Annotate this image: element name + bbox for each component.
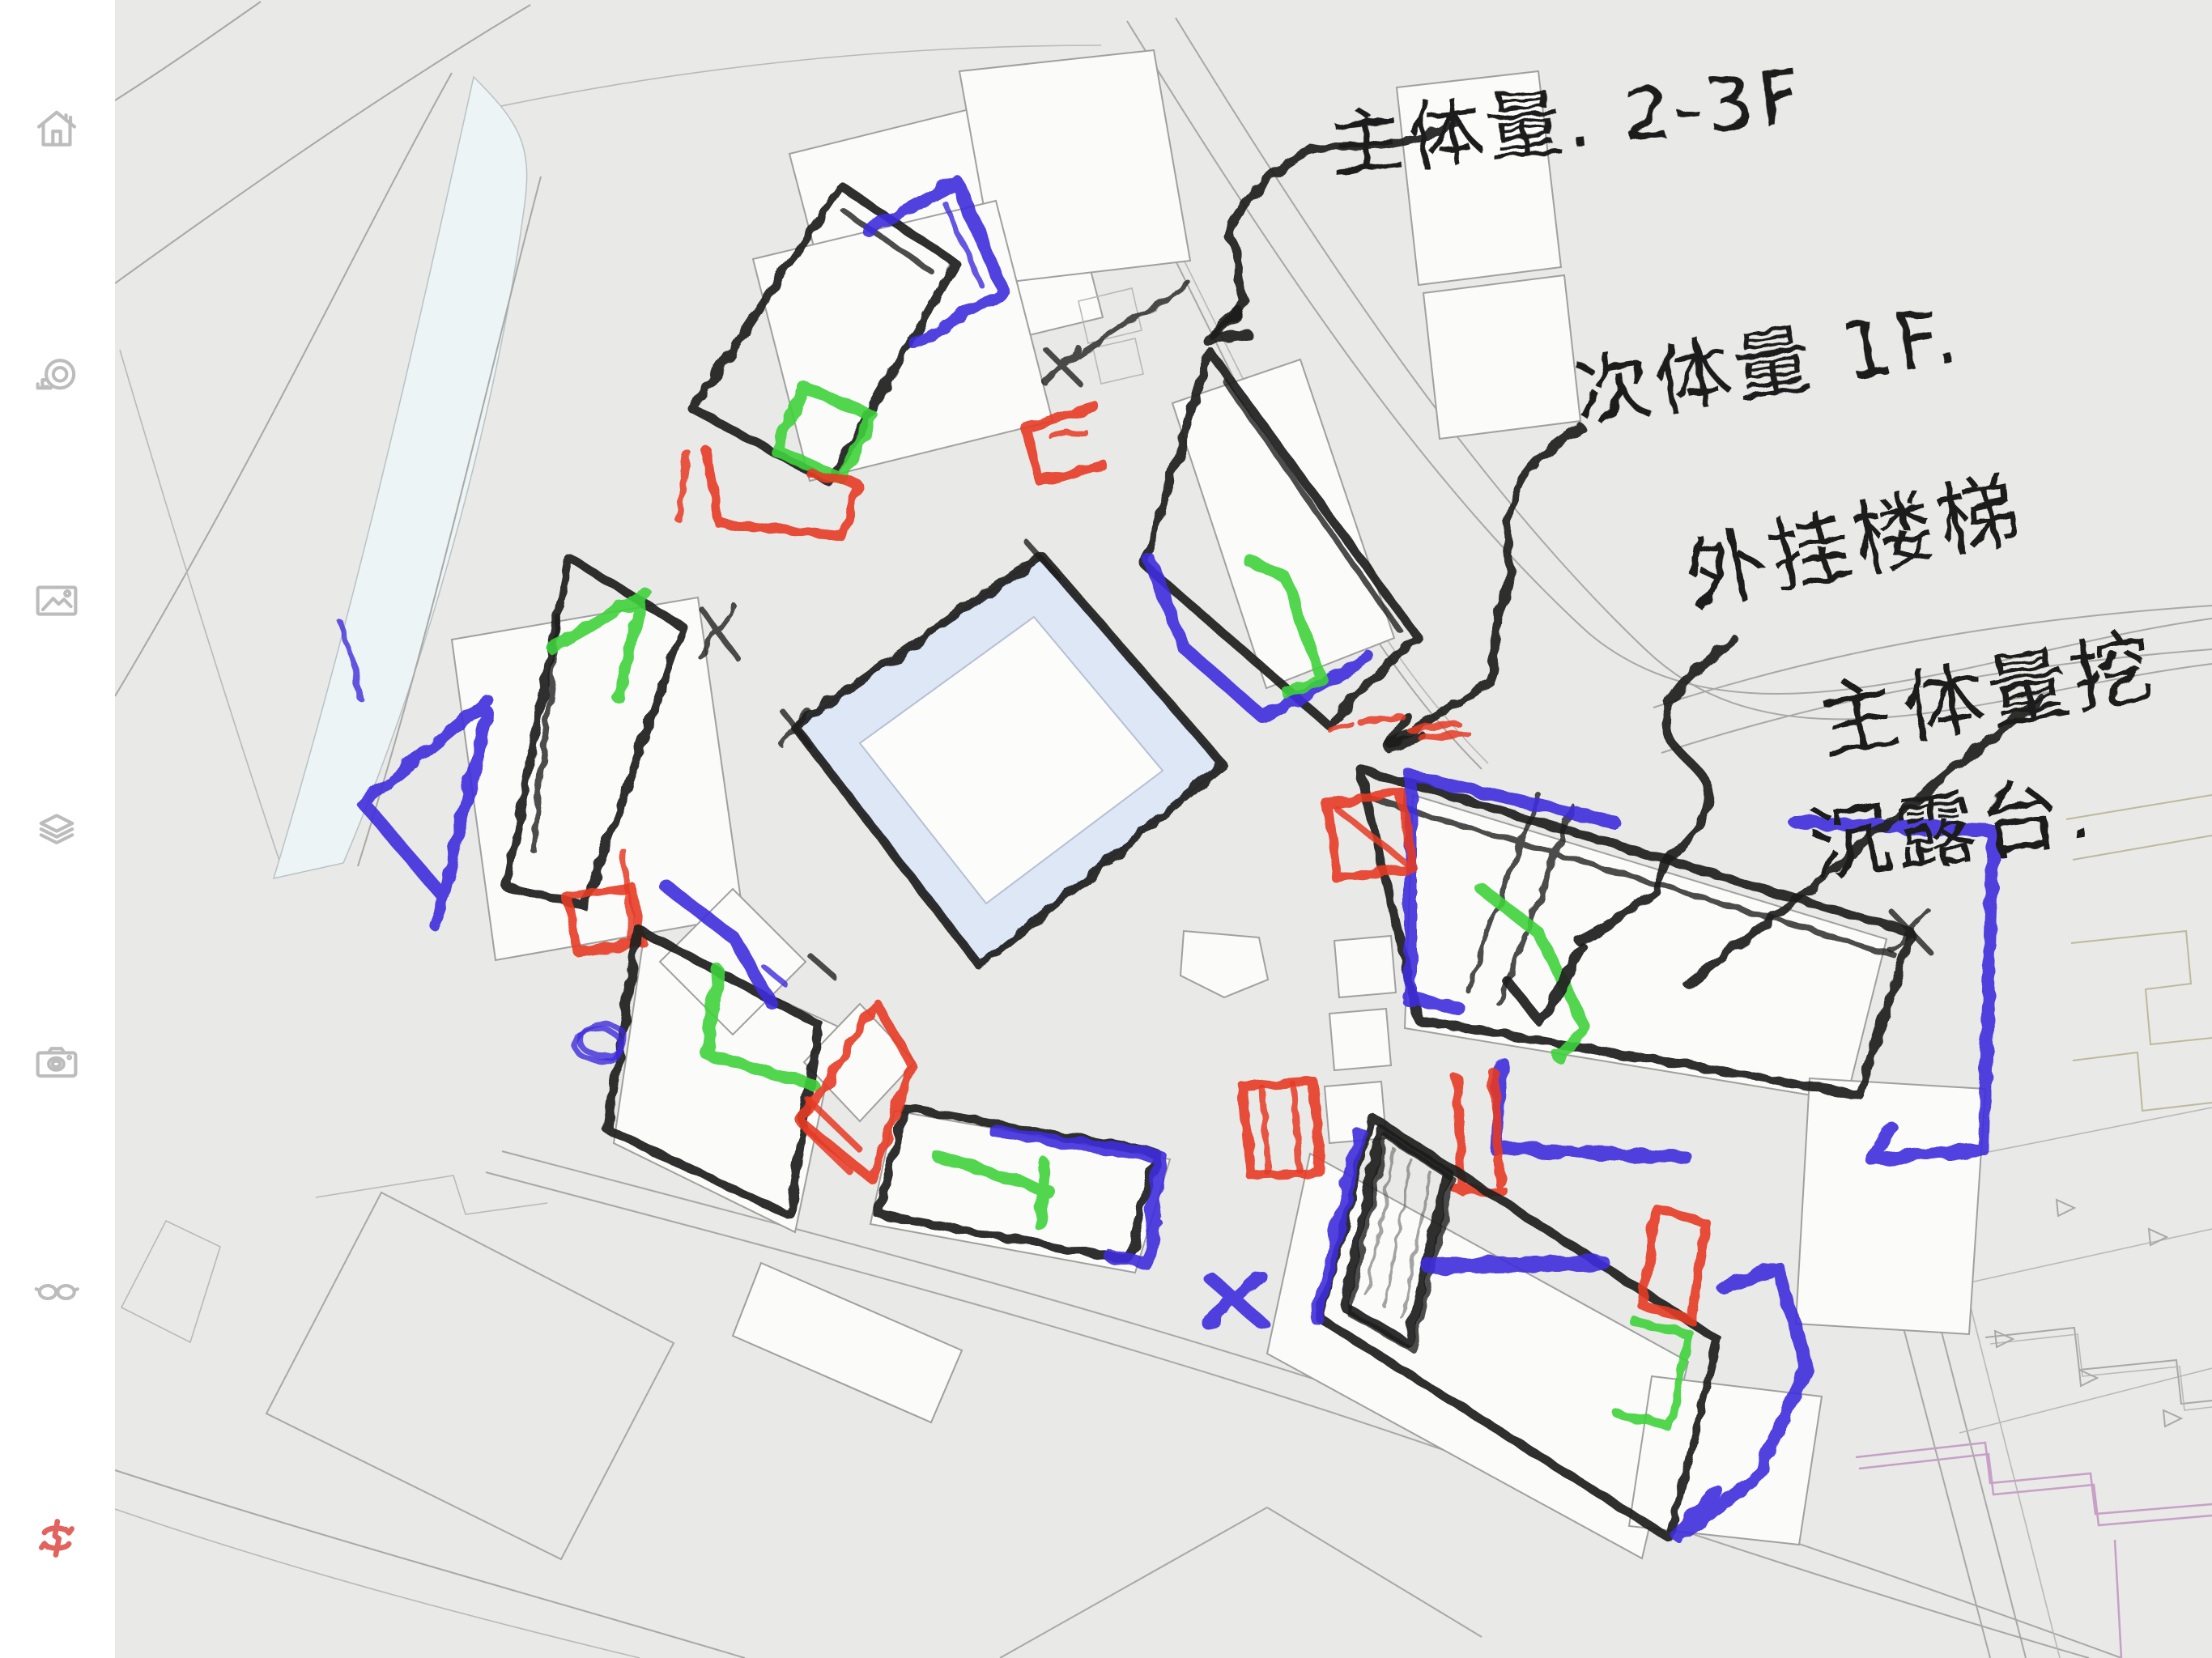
app-window: 主体量. 2-3F 次体量 1F. 外挂楼梯 主体量挖 沉露台. xyxy=(0,0,2212,1658)
plaza-courtyard xyxy=(795,555,1223,966)
parcel-triangle-markers xyxy=(1995,1200,2181,1426)
note-carve-line2: 沉露台. xyxy=(1803,761,2102,895)
sidebar-button-view[interactable] xyxy=(28,1263,86,1321)
sidebar-button-measure[interactable] xyxy=(28,347,86,406)
sidebar-button-camera[interactable] xyxy=(28,1033,86,1091)
boundary-line xyxy=(1856,1443,2212,1514)
sidebar-button-layers[interactable] xyxy=(28,803,86,861)
drawing-canvas[interactable]: 主体量. 2-3F 次体量 1F. 外挂楼梯 主体量挖 沉露台. xyxy=(0,0,2212,1658)
note-secondary-volume: 次体量 1F. xyxy=(1568,291,1968,440)
brand-rotate-icon xyxy=(30,1511,83,1565)
sidebar-button-image[interactable] xyxy=(28,572,86,630)
toolbar-sidebar xyxy=(0,0,115,1658)
image-icon xyxy=(30,574,83,627)
tape-measure-icon xyxy=(30,350,83,403)
sidebar-button-brand[interactable] xyxy=(28,1509,86,1567)
cad-footprints xyxy=(452,50,1985,1558)
note-carve-line1: 主体量挖 xyxy=(1810,619,2165,772)
camera-icon xyxy=(30,1035,83,1089)
layers-icon xyxy=(30,806,83,859)
glasses-icon xyxy=(30,1265,83,1319)
sidebar-button-home[interactable] xyxy=(28,99,86,157)
note-main-volume: 主体量. 2-3F xyxy=(1325,53,1810,189)
note-external-stair: 外挂楼梯 xyxy=(1677,461,2032,625)
home-icon xyxy=(30,101,83,155)
